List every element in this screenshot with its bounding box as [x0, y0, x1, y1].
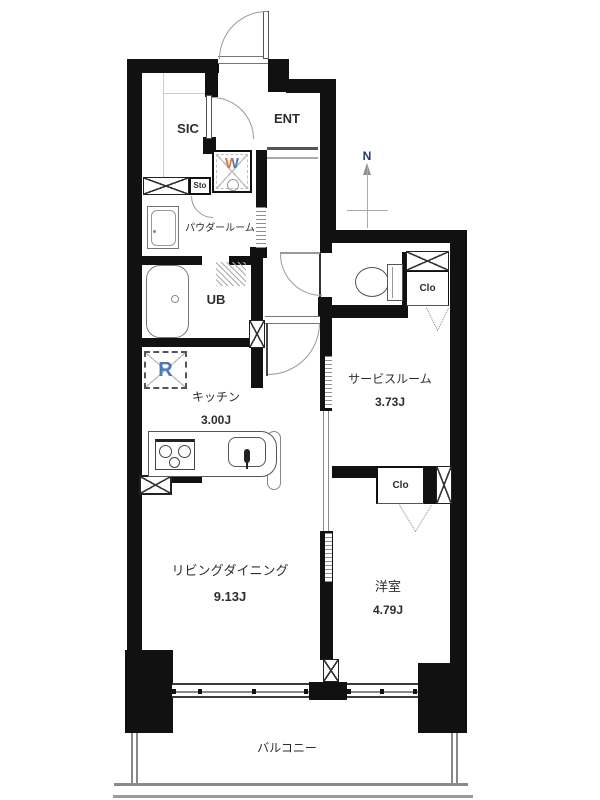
closet-label: Clo	[392, 481, 408, 491]
closet-western: Clo	[376, 466, 425, 504]
stove-icon	[155, 439, 195, 470]
closet-fold-door-icon	[437, 308, 449, 331]
sic-door-arc	[212, 97, 254, 139]
room-label-kitchen: キッチン	[166, 390, 266, 404]
wall	[205, 59, 218, 97]
western-room-sliding-door	[323, 466, 329, 531]
balcony-rail	[131, 733, 138, 784]
powder-door-arc	[191, 196, 213, 218]
wall	[332, 305, 408, 318]
shaft-box-icon	[139, 475, 172, 495]
wall	[286, 79, 336, 93]
room-size-service: 3.73J	[330, 394, 450, 409]
closet-service: Clo	[406, 271, 449, 306]
wall-pillar	[125, 650, 173, 733]
room-label-ent: ENT	[257, 110, 317, 126]
closet-fold-door-icon	[399, 504, 416, 531]
room-label-western: 洋室	[348, 578, 428, 595]
room-label-service: サービスルーム	[328, 371, 452, 387]
balcony-rail	[451, 733, 458, 784]
room-label-powder: パウダールーム	[158, 222, 282, 235]
balcony-edge-line	[114, 783, 468, 786]
shaft-box-icon	[436, 466, 452, 504]
compass-north-label: N	[359, 149, 375, 163]
compass-stem	[367, 167, 368, 228]
shaft-box-icon	[406, 251, 449, 271]
refrigerator-letter: R	[146, 353, 185, 387]
western-room-window	[347, 683, 418, 698]
wall	[450, 243, 467, 667]
room-size-western: 4.79J	[348, 602, 428, 618]
shaft-box-icon	[143, 177, 189, 195]
room-size-living-dining: 9.13J	[160, 588, 300, 605]
wall-window-mullion	[309, 682, 347, 700]
room-label-balcony: バルコニー	[227, 739, 347, 756]
wall	[256, 150, 267, 208]
ldk-door-arc	[268, 323, 320, 375]
entrance-step-line	[267, 147, 318, 150]
closet-fold-door-icon	[415, 505, 432, 532]
wall	[318, 297, 332, 321]
room-label-living-dining: リビングダイニング	[140, 562, 320, 579]
room-label-ub: UB	[196, 291, 236, 307]
sink-icon	[228, 437, 266, 467]
floor-plan: Sto W R Clo	[0, 0, 600, 800]
sto-label: Sto	[194, 182, 207, 190]
sto-box: Sto	[189, 177, 211, 195]
closet-label: Clo	[419, 284, 435, 294]
refrigerator-icon: R	[144, 351, 187, 389]
toilet-tank-icon	[387, 264, 403, 301]
washer-letter: W	[214, 154, 250, 172]
shaft-box-icon	[323, 659, 339, 682]
bathtub-icon	[146, 265, 189, 338]
bath-folding-door-icon	[216, 262, 246, 286]
toilet-icon	[355, 267, 389, 297]
room-size-kitchen: 3.00J	[166, 412, 266, 427]
wall	[141, 256, 202, 265]
entrance-step-line	[267, 157, 318, 159]
wall	[320, 243, 332, 253]
closet-fold-door-icon	[426, 308, 438, 331]
living-window	[172, 683, 309, 698]
wall	[320, 230, 467, 243]
toilet-door-arc	[280, 254, 322, 296]
sic-shelf-line	[164, 93, 205, 94]
entrance-door-arc	[219, 11, 267, 59]
western-door-pocket	[325, 533, 332, 582]
wall-pillar	[418, 663, 467, 733]
wall	[251, 348, 263, 388]
service-room-sliding-door	[323, 411, 329, 466]
room-label-sic: SIC	[158, 120, 218, 136]
wall	[141, 338, 253, 347]
balcony-edge-line	[113, 795, 473, 798]
compass-cross	[347, 210, 388, 211]
wall	[251, 258, 263, 322]
wall	[332, 466, 377, 478]
washer-icon: W	[212, 150, 252, 193]
wall	[320, 92, 336, 234]
shaft-box-icon	[249, 320, 265, 348]
